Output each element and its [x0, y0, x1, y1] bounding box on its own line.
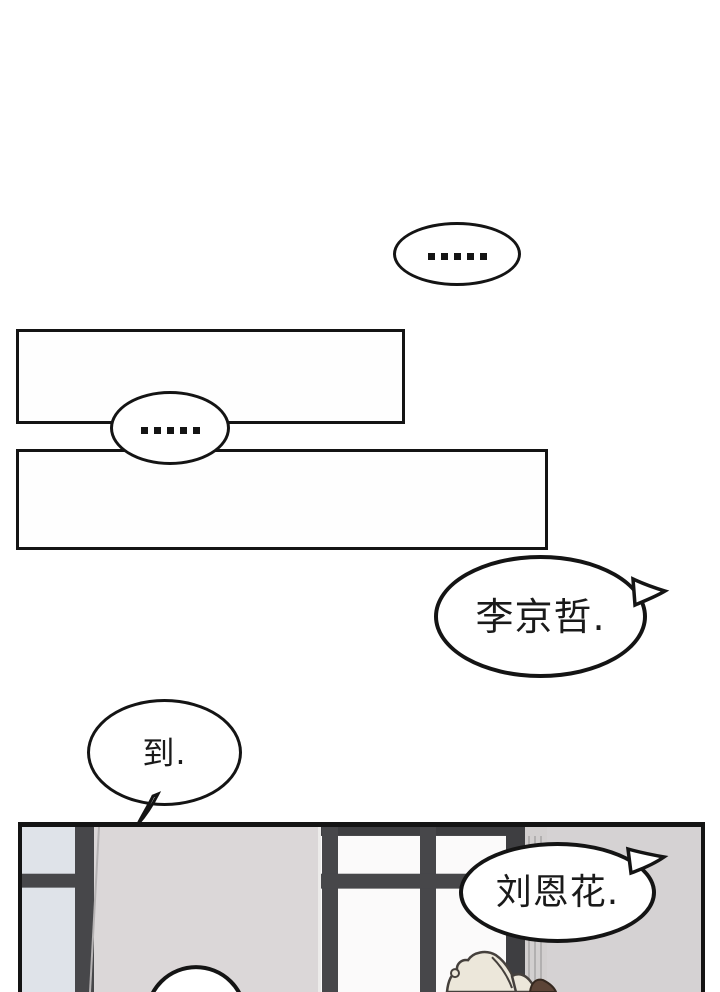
ellipsis-dots — [425, 253, 490, 260]
speech-tail-down-icon — [126, 790, 171, 828]
ellipsis-dots — [138, 427, 203, 434]
narration-box-2 — [16, 449, 548, 550]
comic-page: { "comic": { "bubble_ellipsis_top": { "d… — [0, 0, 720, 992]
speech-tail-right-icon — [622, 845, 668, 879]
speech-bubble-name-lee: 李京哲. — [434, 555, 647, 678]
speech-text-lee: 李京哲. — [475, 598, 605, 636]
speech-bubble-ellipsis-mid — [110, 391, 230, 465]
speech-bubble-ellipsis-top — [393, 222, 521, 286]
speech-text-liu: 刘恩花. — [496, 875, 619, 911]
speech-tail-right-icon — [628, 574, 670, 610]
window-left — [22, 827, 99, 992]
speech-text-reply: 到. — [142, 737, 186, 769]
